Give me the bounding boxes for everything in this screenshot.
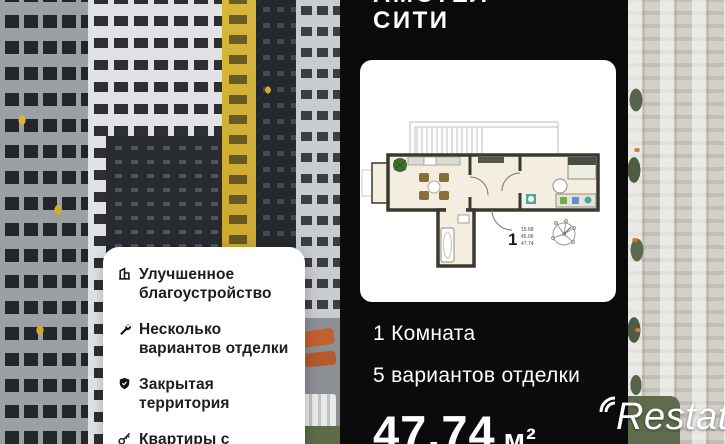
building-icon [118,267,131,280]
floor-plan-card: 1 15.68 45.06 47.74 [360,60,616,302]
floor-plan: 1 15.68 45.06 47.74 [360,60,616,302]
wardrobe [556,194,596,207]
balcony-accents [630,0,644,444]
feature-item: Несколько вариантов отделки [118,320,291,358]
feature-item: Улучшенное благоустройство [118,265,291,303]
area-unit: м² [504,424,537,444]
rug [478,157,504,163]
bed [568,157,596,179]
plan-figure: 45.06 [521,234,534,240]
feature-item: Закрытая территория [118,375,291,413]
building-facade-right [628,0,725,444]
balcony [372,163,388,203]
info-panel: АМСТЕЛ СИТИ [340,0,628,444]
area-value: 47.74 [373,406,496,444]
white-tent [300,394,336,428]
finish-options: 5 вариантов отделки [373,364,580,388]
feature-label: Несколько вариантов отделки [139,320,291,358]
real-estate-ad: Улучшенное благоустройство Несколько вар… [0,0,725,444]
sink [458,215,469,223]
feature-item: Квартиры с кухнями [118,430,291,444]
plan-figure: 15.68 [521,227,534,233]
unit-number: 1 [508,230,517,249]
rooms-count: 1 Комната [373,322,475,346]
complex-title: АМСТЕЛ СИТИ [373,0,490,34]
outer-balcony [362,170,372,196]
wrench-icon [118,322,131,335]
building-facade-left [0,0,92,444]
parked-car [303,351,336,368]
features-card: Улучшенное благоустройство Несколько вар… [103,247,305,444]
bathtub [441,228,454,262]
feature-label: Улучшенное благоустройство [139,265,291,303]
stove [424,157,436,165]
feature-label: Квартиры с кухнями [139,430,291,444]
terrace-outline [410,122,558,155]
total-area: 47.74м² [373,405,537,444]
compass-icon [552,220,576,246]
complex-title-line2: СИТИ [373,8,490,34]
shield-check-icon [118,377,131,390]
restate-watermark: Restate [598,396,725,439]
plan-figure: 47.74 [521,241,534,247]
watermark-text: Restate [616,396,725,439]
key-icon [118,432,131,444]
round-table [553,179,567,193]
feature-label: Закрытая территория [139,375,291,413]
